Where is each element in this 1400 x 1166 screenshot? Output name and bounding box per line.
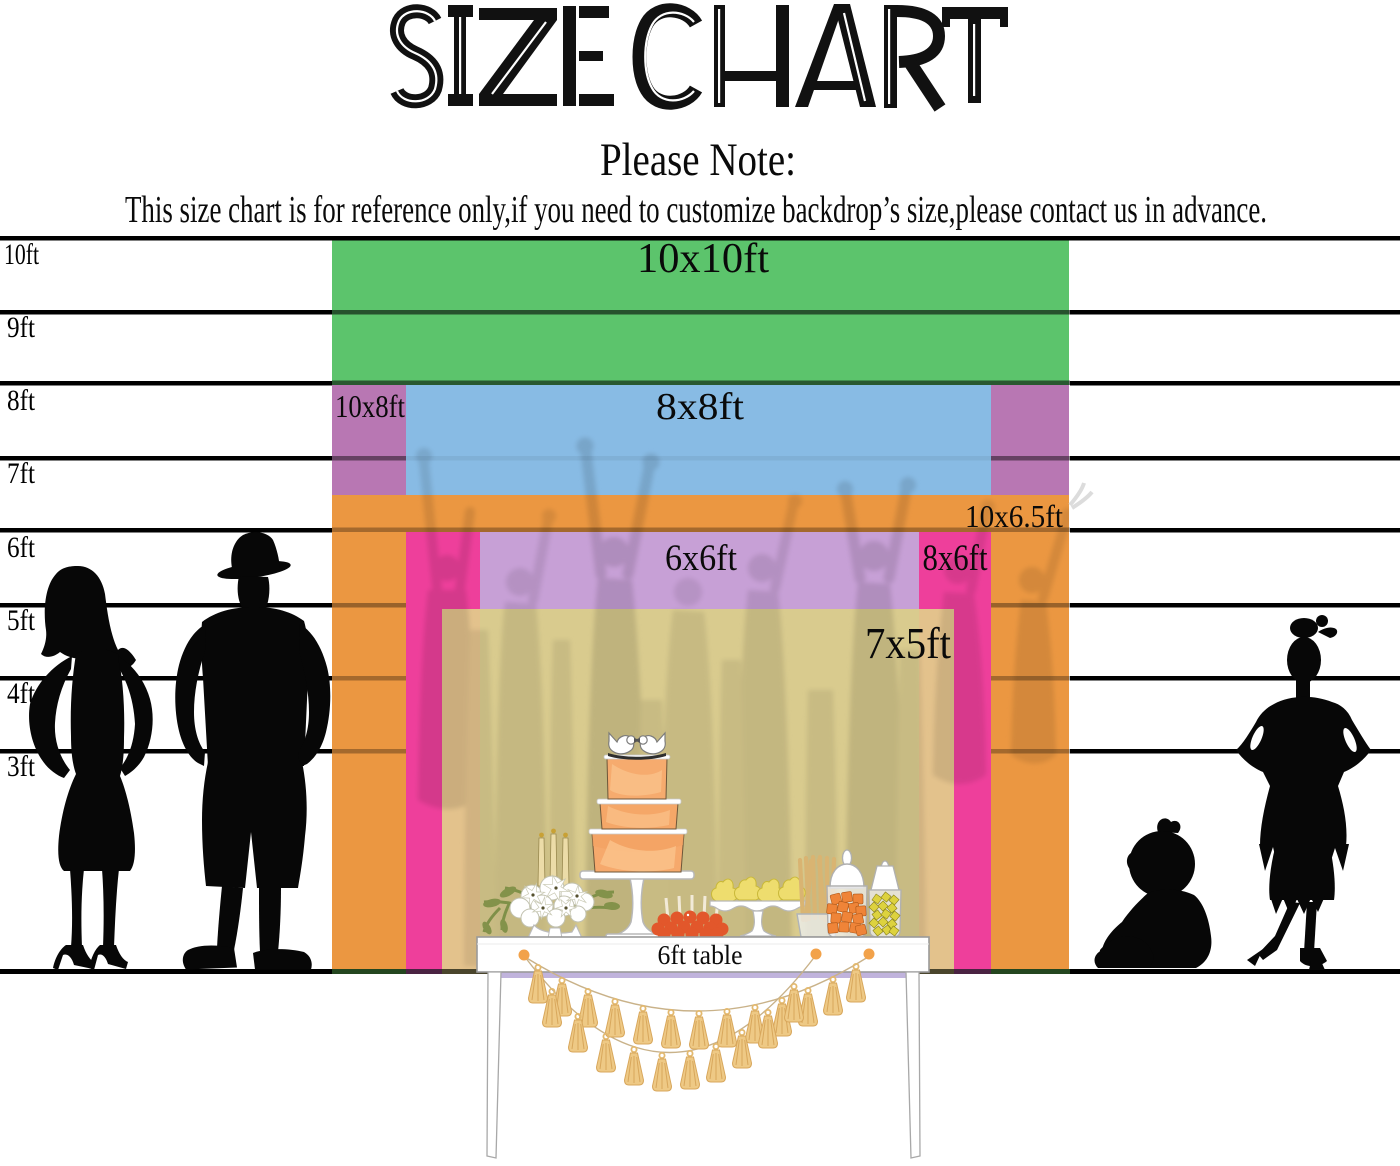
svg-text:7x5ft: 7x5ft	[865, 619, 951, 668]
svg-text:This size chart is for referen: This size chart is for reference only,if…	[125, 189, 1267, 231]
svg-text:Please Note:: Please Note:	[600, 134, 796, 186]
svg-text:7ft: 7ft	[7, 457, 36, 490]
svg-text:10x8ft: 10x8ft	[335, 388, 405, 424]
svg-text:8x6ft: 8x6ft	[923, 538, 989, 579]
svg-text:8ft: 8ft	[7, 384, 36, 417]
svg-text:6ft: 6ft	[7, 531, 36, 564]
svg-text:6x6ft: 6x6ft	[665, 538, 738, 579]
svg-text:8x8ft: 8x8ft	[656, 386, 744, 428]
svg-text:5ft: 5ft	[7, 604, 36, 637]
svg-text:9ft: 9ft	[7, 311, 36, 344]
svg-text:3ft: 3ft	[7, 750, 36, 783]
svg-text:10x10ft: 10x10ft	[637, 236, 769, 282]
svg-text:10x6.5ft: 10x6.5ft	[965, 498, 1063, 534]
svg-text:6ft table: 6ft table	[658, 940, 743, 970]
svg-text:10ft: 10ft	[4, 238, 39, 271]
